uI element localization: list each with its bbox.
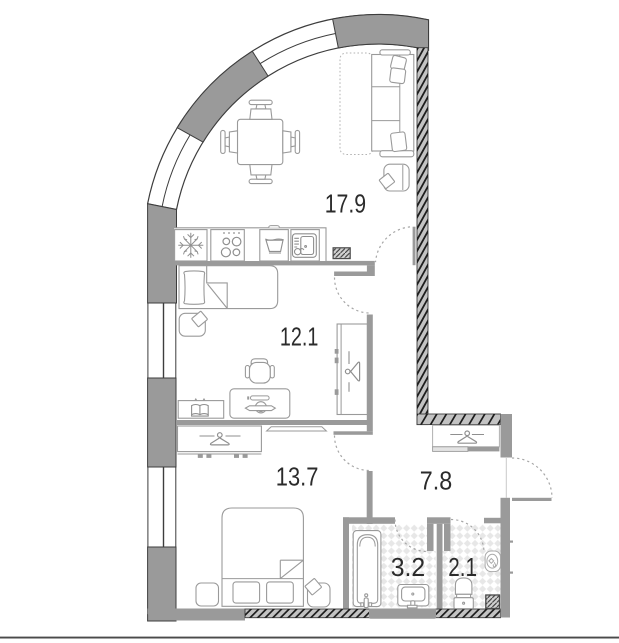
svg-text:2.1: 2.1 [448,554,477,582]
svg-text:3.2: 3.2 [391,554,426,582]
svg-text:12.1: 12.1 [280,324,319,352]
svg-text:17.9: 17.9 [325,191,366,219]
svg-text:7.8: 7.8 [420,467,452,495]
svg-text:13.7: 13.7 [276,464,319,492]
